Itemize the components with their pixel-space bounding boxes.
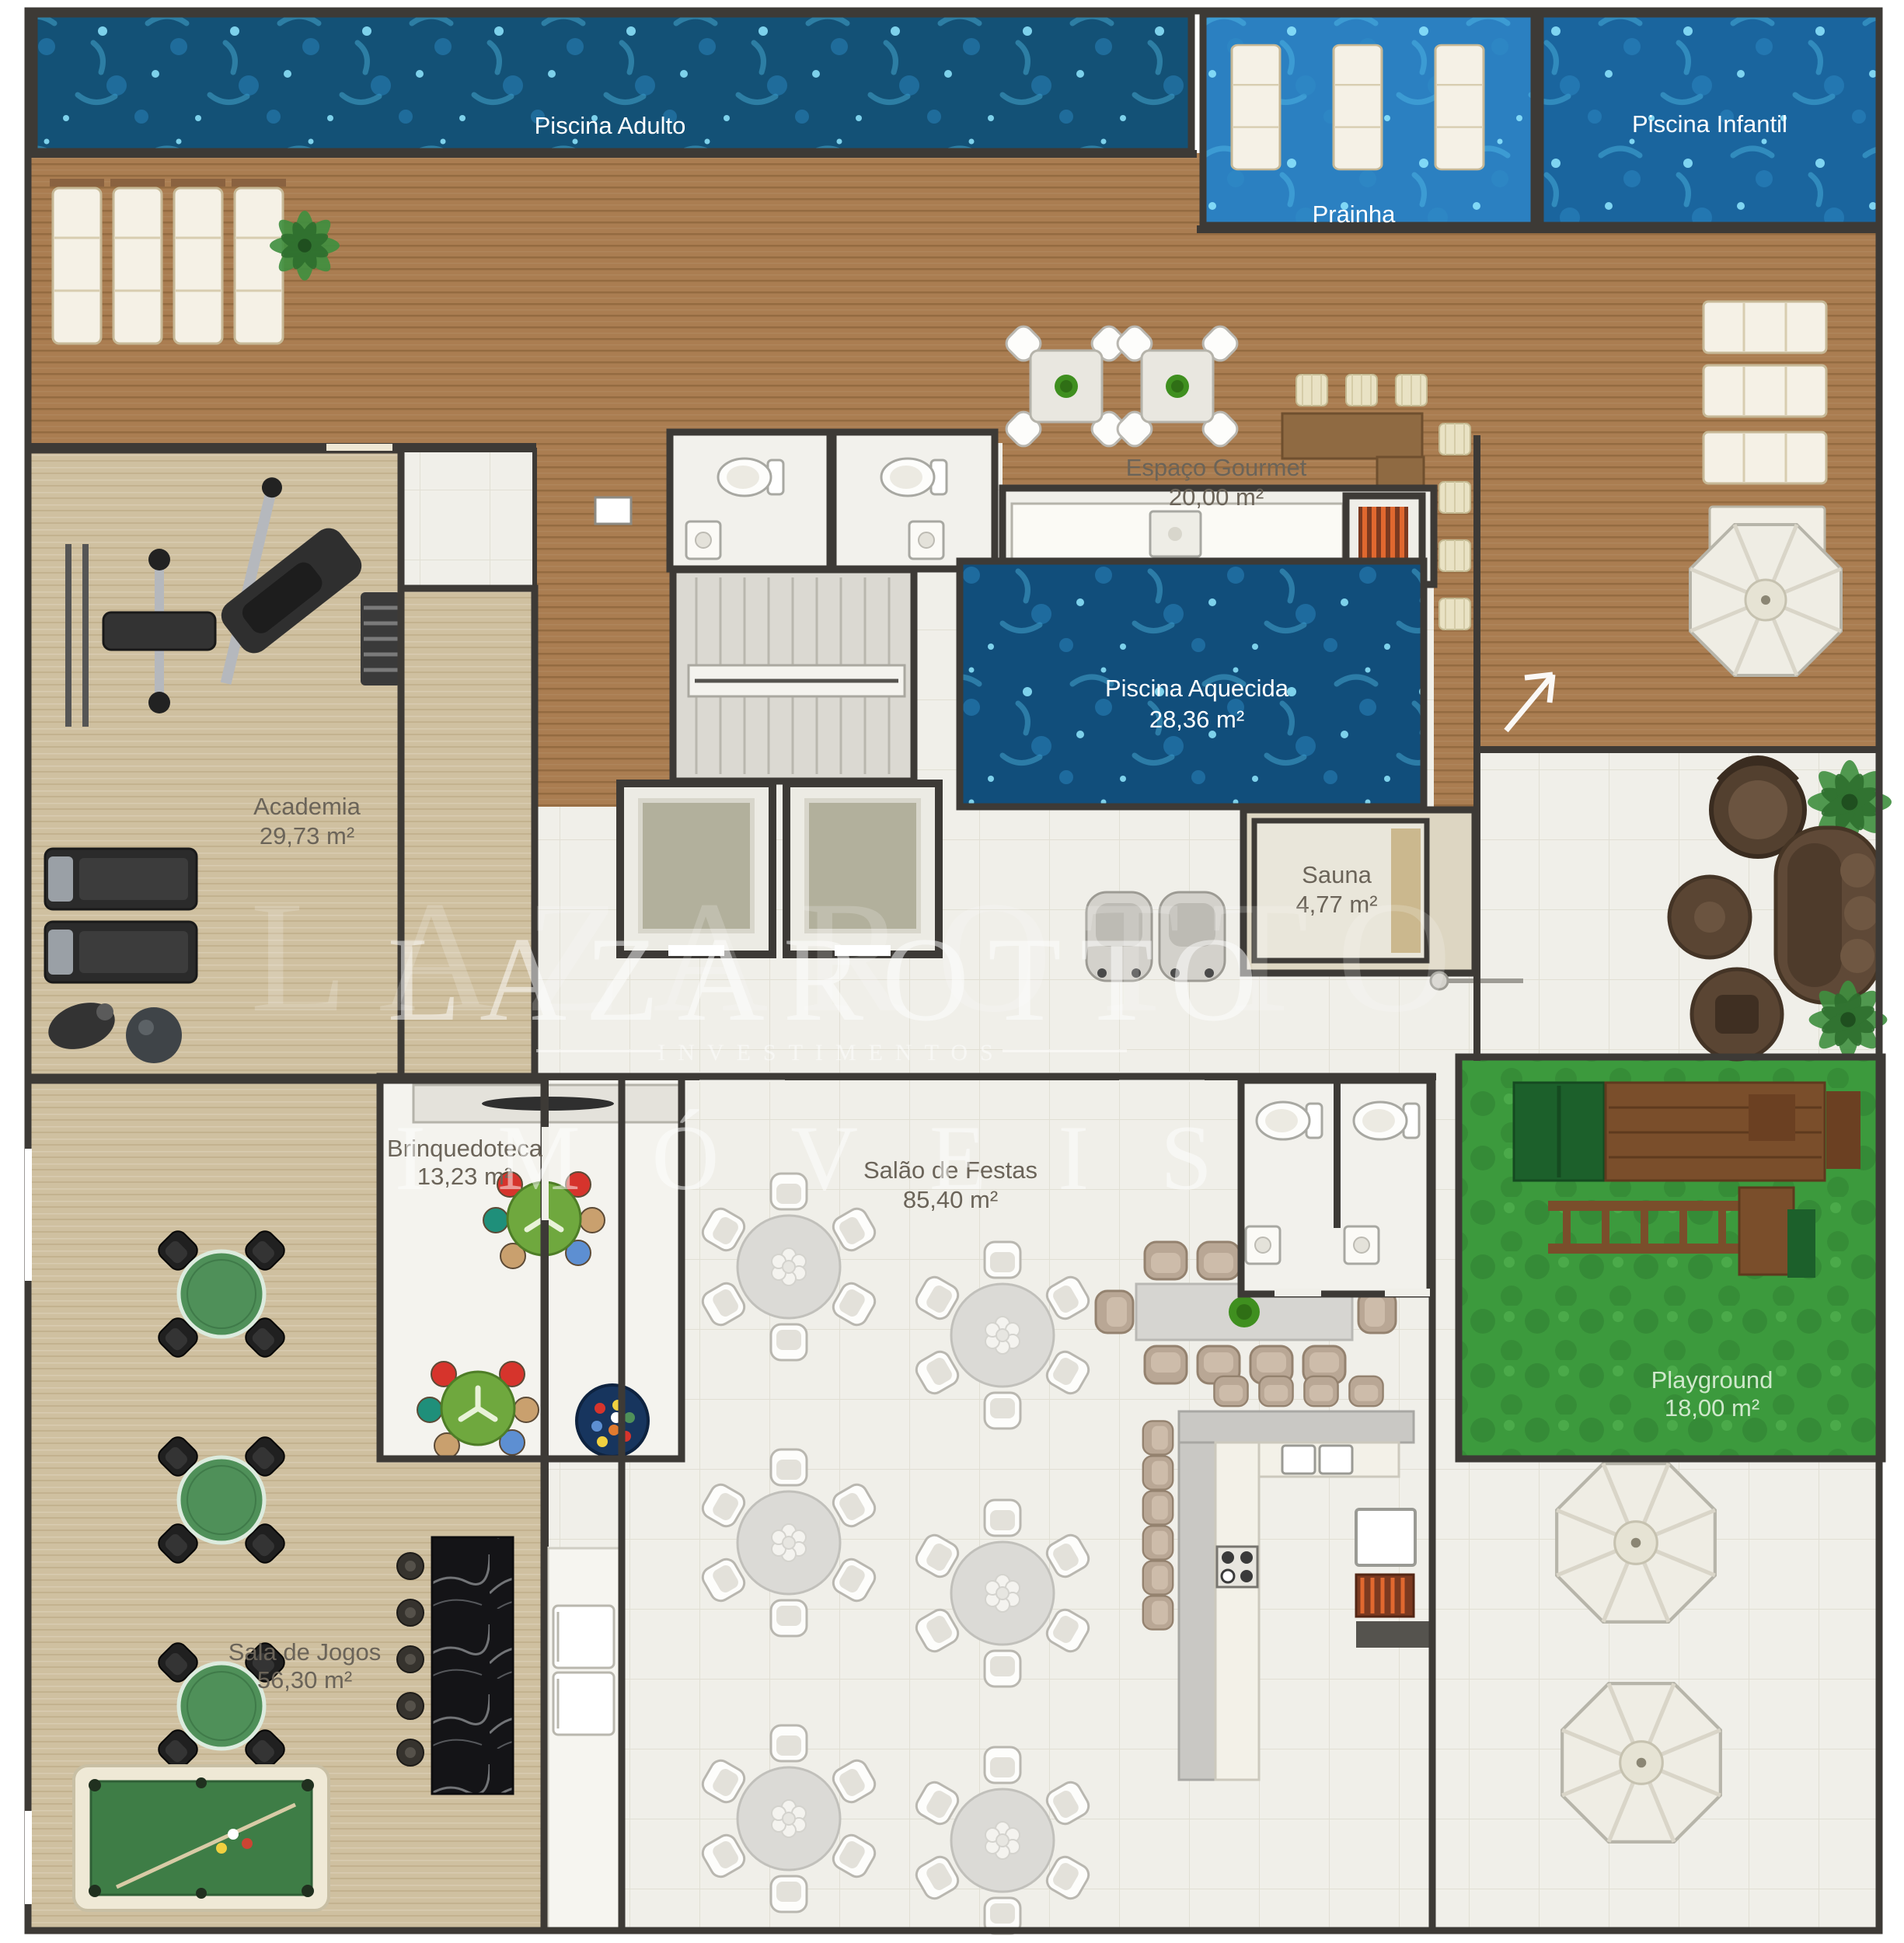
patio-plant: [1809, 981, 1888, 1059]
sink: [909, 522, 943, 559]
prainha-pool: [1203, 14, 1534, 225]
fridge: [553, 1673, 614, 1735]
label-heated-pool: Piscina Aquecida: [1105, 675, 1289, 702]
label-playground-area: 18,00 m²: [1665, 1394, 1759, 1421]
marble-bar: [432, 1537, 513, 1794]
service-counter: [548, 1548, 619, 1931]
label-prainha: Prainha: [1313, 201, 1397, 228]
label-adult-pool: Piscina Adulto: [535, 112, 686, 139]
dumbbell-rack: [361, 592, 401, 685]
floor-plan: Piscina Adulto Prainha Piscina Infantil …: [0, 0, 1904, 1943]
ball-pit: [577, 1385, 648, 1456]
label-games-room-area: 56,30 m²: [257, 1666, 352, 1694]
staircase: [673, 570, 914, 781]
utility-panel: [595, 497, 631, 524]
bar-counter: [1282, 413, 1422, 459]
deck-plant: [270, 211, 340, 281]
patio-umbrella: [1562, 1683, 1721, 1842]
toilet: [881, 459, 947, 496]
gym-ball: [126, 1007, 182, 1063]
kids-table: [417, 1362, 539, 1458]
label-kids-pool: Piscina Infantil: [1632, 110, 1787, 138]
label-gourmet-area: 20,00 m²: [1169, 483, 1264, 511]
kitchen-grill: [1356, 1575, 1414, 1617]
watermark-brand: LAZAROTTO: [387, 912, 1275, 1046]
floor-plan-canvas: Piscina Adulto Prainha Piscina Infantil …: [0, 0, 1904, 1943]
label-games-room: Sala de Jogos: [228, 1638, 381, 1666]
watermark-line2: IMÓVEIS: [395, 1106, 1284, 1209]
label-gourmet: Espaço Gourmet: [1126, 454, 1307, 481]
bathroom-1: [670, 432, 830, 569]
watermark-sub: INVESTIMENTOS: [657, 1040, 1005, 1066]
toilet: [718, 459, 783, 496]
label-playground: Playground: [1651, 1366, 1773, 1394]
stove: [1217, 1547, 1257, 1587]
kitchen-sink: [1282, 1446, 1315, 1474]
bathroom-2: [833, 432, 995, 569]
in-pool-lounger: [1435, 45, 1484, 169]
toilet: [1354, 1102, 1419, 1139]
label-gym-area: 29,73 m²: [260, 822, 354, 849]
kitchen-counter: [1179, 1411, 1414, 1442]
patio-umbrella: [1557, 1463, 1715, 1622]
daybed: [1776, 828, 1881, 1003]
treadmill: [45, 849, 197, 909]
in-pool-lounger: [1334, 45, 1382, 169]
in-pool-lounger: [1232, 45, 1280, 169]
label-gym: Academia: [253, 793, 361, 820]
kitchen-fridge: [1356, 1509, 1415, 1565]
fridge: [553, 1606, 614, 1668]
play-structure: [1514, 1083, 1860, 1278]
sink: [1246, 1226, 1280, 1264]
sink: [686, 522, 720, 559]
billiard-table: [74, 1766, 329, 1910]
treadmill: [45, 922, 197, 982]
label-heated-pool-area: 28,36 m²: [1149, 706, 1244, 733]
sink: [1344, 1226, 1379, 1264]
deck-parasol: [1690, 525, 1841, 675]
